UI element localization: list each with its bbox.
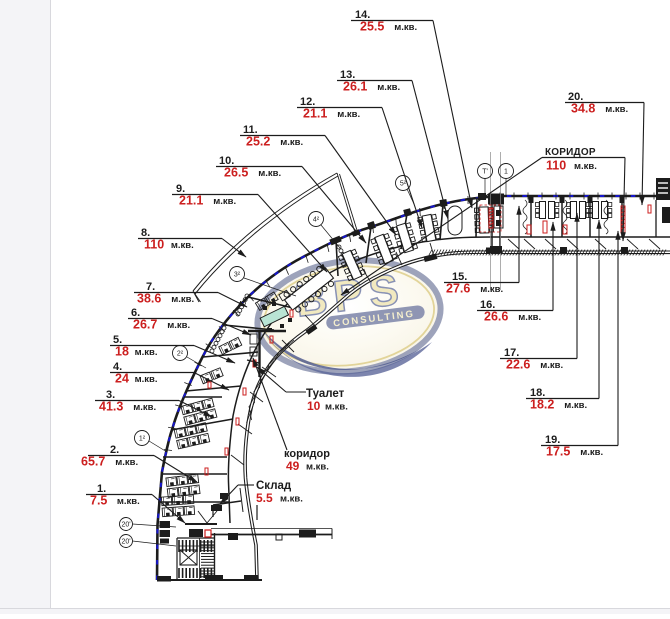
svg-text:18: 18 [115,345,129,359]
svg-text:м.кв.: м.кв. [115,457,138,468]
svg-text:20': 20' [121,521,130,528]
svg-text:26.6: 26.6 [484,310,508,324]
svg-text:м.кв.: м.кв. [480,284,503,295]
svg-text:м.кв.: м.кв. [580,447,603,458]
svg-text:м.кв.: м.кв. [394,22,417,33]
svg-text:110: 110 [144,238,164,252]
svg-text:10: 10 [307,399,321,413]
svg-text:7.5: 7.5 [90,494,107,508]
svg-text:м.кв.: м.кв. [605,104,628,115]
svg-text:м.кв.: м.кв. [540,360,563,371]
svg-text:38.6: 38.6 [137,292,161,306]
svg-text:м.кв.: м.кв. [574,161,597,172]
svg-text:4²: 4² [313,216,320,223]
svg-text:20': 20' [121,538,130,545]
svg-text:65.7: 65.7 [81,455,105,469]
svg-text:110: 110 [546,159,566,173]
svg-text:Т': Т' [482,168,488,175]
svg-text:м.кв.: м.кв. [564,400,587,411]
svg-text:м.кв.: м.кв. [135,374,158,385]
svg-text:18.2: 18.2 [530,398,554,412]
svg-text:25.5: 25.5 [360,20,384,34]
svg-text:22.6: 22.6 [506,358,530,372]
svg-text:1: 1 [504,168,508,175]
svg-text:м.кв.: м.кв. [171,240,194,251]
svg-text:м.кв.: м.кв. [280,494,303,505]
svg-text:м.кв.: м.кв. [213,196,236,207]
svg-text:м.кв.: м.кв. [377,82,400,93]
svg-text:21.1: 21.1 [179,194,203,208]
svg-text:26.5: 26.5 [224,166,248,180]
svg-text:49: 49 [286,459,300,473]
svg-text:м.кв.: м.кв. [135,347,158,358]
svg-text:м.кв.: м.кв. [258,168,281,179]
svg-text:41.3: 41.3 [99,400,123,414]
svg-text:1²: 1² [139,435,146,442]
svg-text:26.7: 26.7 [133,318,157,332]
svg-text:м.кв.: м.кв. [171,294,194,305]
svg-text:КОРИДОР: КОРИДОР [545,147,596,158]
svg-text:26.1: 26.1 [343,80,367,94]
svg-text:27.6: 27.6 [446,282,470,296]
svg-text:м.кв.: м.кв. [518,312,541,323]
svg-text:34.8: 34.8 [571,102,595,116]
svg-text:2.: 2. [110,444,119,456]
svg-text:3²: 3² [234,271,241,278]
svg-text:25.2: 25.2 [246,135,270,149]
svg-text:м.кв.: м.кв. [167,320,190,331]
svg-text:м.кв.: м.кв. [325,402,348,413]
svg-text:21.1: 21.1 [303,107,327,121]
svg-text:м.кв.: м.кв. [117,496,140,507]
svg-text:м.кв.: м.кв. [306,462,329,473]
svg-text:м.кв.: м.кв. [133,402,156,413]
svg-text:24: 24 [115,372,129,386]
svg-text:5.5: 5.5 [256,491,273,505]
svg-text:м.кв.: м.кв. [337,109,360,120]
svg-text:м.кв.: м.кв. [280,137,303,148]
svg-text:2²: 2² [177,350,184,357]
svg-text:17.5: 17.5 [546,445,570,459]
svg-text:5²: 5² [400,180,407,187]
